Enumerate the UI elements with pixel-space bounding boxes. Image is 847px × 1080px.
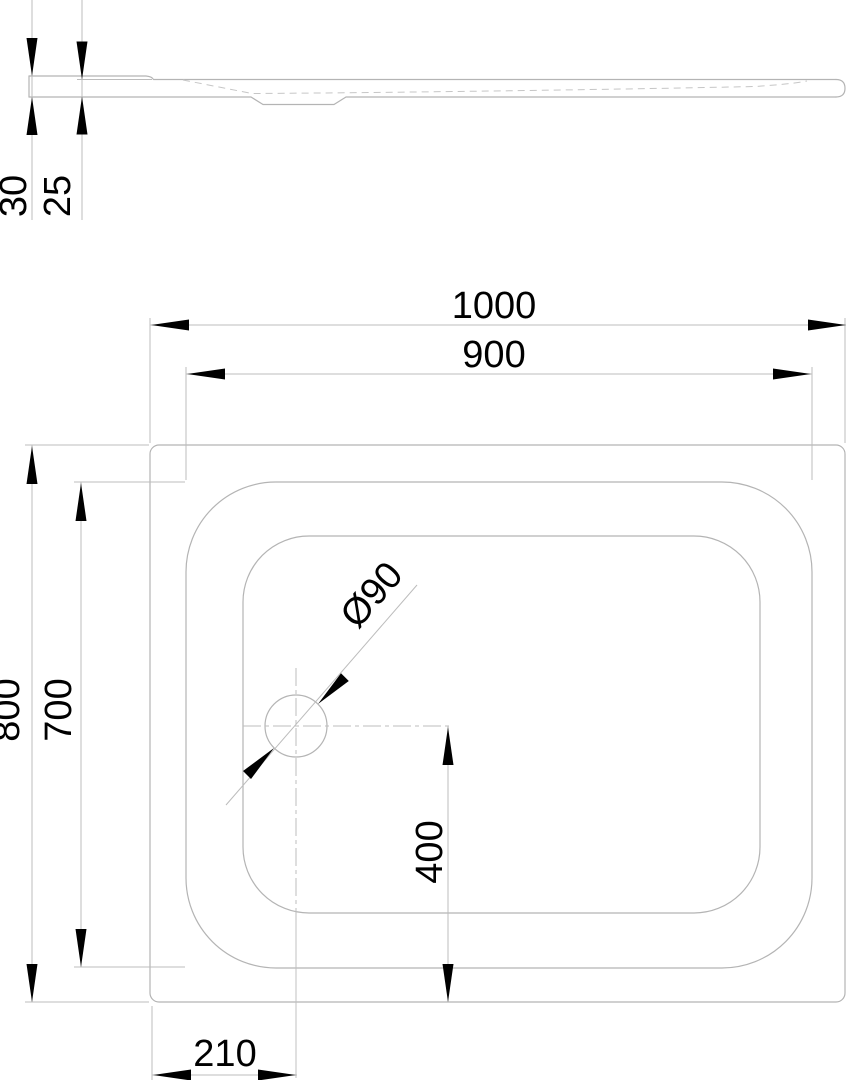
dim-rim-width-900: 900 (186, 334, 812, 480)
dim-arrow-up (27, 446, 38, 484)
dim-drain-offset-left-210: 210 (152, 1006, 297, 1080)
dim-rim-depth-700: 700 (38, 482, 185, 967)
tray-outer-outline (150, 445, 845, 1002)
dim-arrow-left (151, 320, 189, 331)
dim-arrow-down (77, 42, 88, 80)
dim-arrow-up (27, 97, 38, 135)
dim-label-overall-width: 1000 (452, 285, 537, 327)
dim-label-edge-height: 30 (0, 175, 35, 217)
dim-arrow-up (443, 727, 454, 765)
dim-arrow-down (27, 964, 38, 1002)
profile-top-edge (29, 76, 836, 80)
tray-rim-inner-outline (186, 482, 812, 968)
dim-arrow-right (773, 369, 811, 380)
dim-arrow-left (187, 369, 225, 380)
dim-arrow-down (76, 929, 87, 967)
dim-arrow-left (153, 1070, 191, 1080)
dim-drain-offset-bottom-400: 400 (409, 726, 454, 1002)
dim-label-rim-width: 900 (462, 334, 525, 376)
drawing-svg: 30 25 1000 900 (0, 0, 847, 1080)
dim-arrow-right (258, 1070, 296, 1080)
dim-arrow-up (77, 97, 88, 135)
dim-label-overall-depth: 800 (0, 678, 28, 741)
tray-floor-outline (243, 536, 760, 913)
side-profile-view (29, 76, 845, 105)
dim-edge-height-30: 30 (0, 0, 38, 220)
dim-arrow-right (808, 320, 846, 331)
leader-arrow-upper (318, 673, 349, 704)
profile-bottom-edge (29, 97, 836, 105)
dim-label-basin-depth: 25 (37, 175, 79, 217)
dim-label-drain-offset-bottom: 400 (409, 820, 451, 883)
dim-drain-diameter-90: Ø90 (226, 554, 417, 805)
dim-basin-depth-25: 25 (37, 0, 152, 220)
dim-label-drain-diameter: Ø90 (333, 554, 412, 636)
profile-hidden-floor-line (183, 80, 807, 94)
dim-arrow-down (27, 38, 38, 76)
profile-right-cap (836, 80, 845, 98)
dim-label-rim-depth: 700 (38, 678, 80, 741)
technical-drawing-canvas: 30 25 1000 900 (0, 0, 847, 1080)
plan-view (150, 445, 845, 1078)
dim-arrow-down (443, 964, 454, 1002)
leader-arrow-lower (243, 748, 274, 779)
dim-arrow-up (76, 483, 87, 521)
dim-label-drain-offset-left: 210 (193, 1033, 256, 1075)
